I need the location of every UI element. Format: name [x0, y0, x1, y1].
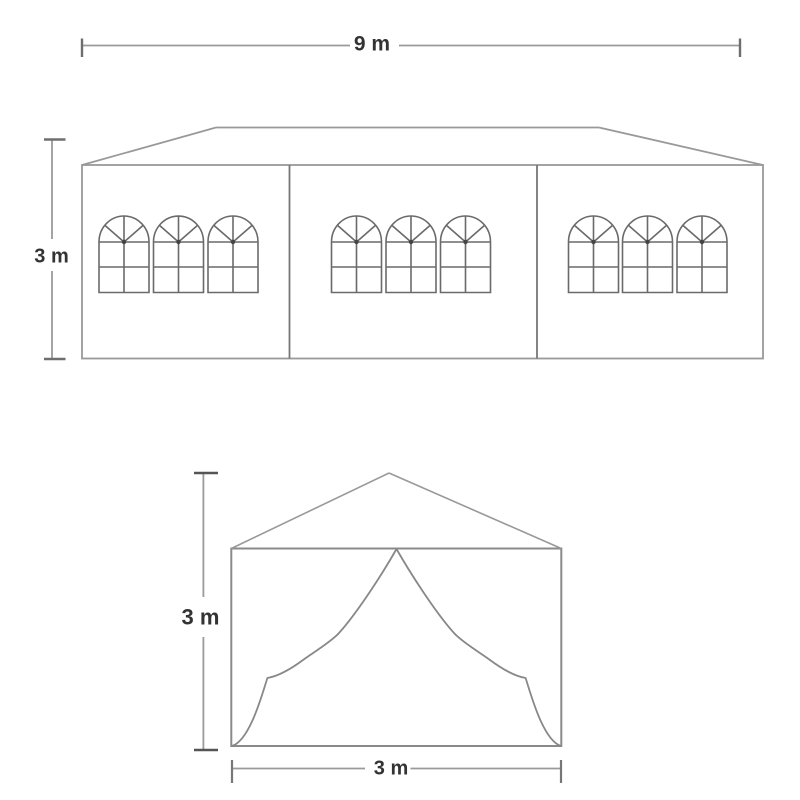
svg-text:3 m: 3 m	[34, 246, 68, 268]
svg-text:3 m: 3 m	[374, 758, 408, 780]
svg-text:3 m: 3 m	[182, 605, 220, 630]
svg-text:9 m: 9 m	[354, 33, 390, 56]
